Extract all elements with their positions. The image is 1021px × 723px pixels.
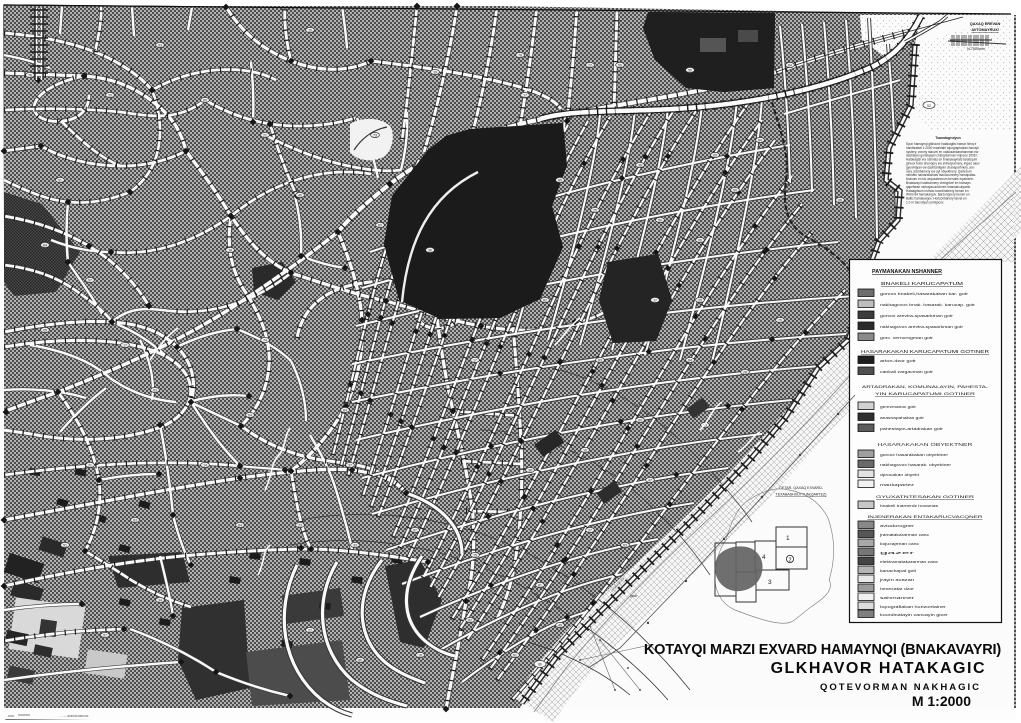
svg-text:34: 34 — [158, 598, 162, 602]
svg-text:3: 3 — [768, 579, 772, 586]
svg-text:21: 21 — [88, 463, 92, 467]
svg-text:avtodorogner: avtodorogner — [880, 524, 915, 528]
svg-text:gerezmanoc gotr: gerezmanoc gotr — [880, 405, 917, 409]
svg-text:getar: getar — [630, 594, 638, 598]
svg-text:29: 29 — [108, 93, 112, 97]
svg-text:pahestayin-artadrakan gotr: pahestayin-artadrakan gotr — [880, 427, 944, 431]
svg-text:sahmanner: sahmanner — [880, 596, 916, 600]
svg-text:89: 89 — [558, 178, 562, 182]
svg-text:56: 56 — [688, 68, 692, 72]
svg-text:37: 37 — [348, 463, 352, 467]
svg-text:57: 57 — [103, 633, 107, 637]
svg-text:arton-dzor gotr: arton-dzor gotr — [880, 359, 917, 363]
svg-text:74: 74 — [263, 338, 267, 342]
svg-text:kojuxajrman canc: kojuxajrman canc — [880, 542, 919, 546]
svg-text:Tsanotagrutyun: Tsanotagrutyun — [935, 136, 960, 140]
svg-text:16: 16 — [583, 448, 587, 452]
svg-text:21: 21 — [263, 133, 267, 137]
svg-text:gorcox hasarakakan obyektner: gorcox hasarakakan obyektner — [880, 453, 949, 457]
svg-text:79: 79 — [778, 318, 782, 322]
svg-text:83: 83 — [133, 518, 137, 522]
svg-text:jrayin avazan: jrayin avazan — [878, 578, 914, 582]
svg-text:84: 84 — [43, 243, 47, 247]
svg-text:69: 69 — [713, 153, 717, 157]
svg-text:52: 52 — [927, 104, 931, 108]
svg-text:84: 84 — [688, 358, 692, 362]
svg-text:topografiakan horizontalner: topografiakan horizontalner — [880, 605, 947, 609]
svg-text:INJENERAKAN ENTAKARUCVACQNER: INJENERAKAN ENTAKARUCVACQNER — [868, 514, 983, 519]
svg-text:QOTEVORMAN NAKHAGIC: QOTEVORMAN NAKHAGIC — [820, 682, 981, 693]
svg-text:84: 84 — [788, 63, 792, 67]
svg-text:HASARAKAKAN OBYEKTNER: HASARAKAKAN OBYEKTNER — [878, 442, 973, 447]
svg-text:27: 27 — [588, 528, 592, 532]
svg-text:15: 15 — [473, 553, 477, 557]
svg-text:jramatakararman canc: jramatakararman canc — [879, 533, 930, 537]
svg-text:60: 60 — [638, 418, 642, 422]
svg-text:GYUXATNTESAKAN GOTINER: GYUXATNTESAKAN GOTINER — [876, 494, 974, 499]
svg-text:gorcox bnakeli,hasarakakan kar: gorcox bnakeli,hasarakakan kar. gotr — [880, 292, 969, 296]
svg-text:1.0 m barzutyan ynmijocov.: 1.0 m barzutyan ynmijocov. — [906, 201, 944, 205]
svg-text:17: 17 — [523, 93, 527, 97]
svg-text:22: 22 — [308, 628, 312, 632]
svg-text:17: 17 — [473, 358, 477, 362]
svg-text:14: 14 — [203, 463, 207, 467]
svg-text:65: 65 — [43, 328, 47, 332]
svg-text:anasnapahakan gotr: anasnapahakan gotr — [880, 416, 925, 420]
svg-text:49: 49 — [558, 623, 562, 627]
svg-text:50: 50 — [658, 218, 662, 222]
svg-text:90: 90 — [733, 188, 737, 192]
svg-text:bnakeli tnamerdz hoxamas: bnakeli tnamerdz hoxamas — [880, 504, 938, 508]
svg-text:4: 4 — [762, 554, 766, 561]
svg-text:QAXAQ EREVAN: QAXAQ EREVAN — [970, 22, 1001, 26]
svg-text:90: 90 — [698, 238, 702, 242]
svg-text:hexexatar dzor: hexexatar dzor — [880, 587, 915, 591]
svg-text:36: 36 — [428, 248, 432, 252]
svg-text:97: 97 — [88, 278, 92, 282]
svg-text:PAYMANAKAN NSHANNER: PAYMANAKAN NSHANNER — [872, 269, 942, 275]
svg-text:97: 97 — [413, 528, 417, 532]
svg-text:47: 47 — [648, 478, 652, 482]
svg-text:40: 40 — [298, 193, 302, 197]
svg-text:82: 82 — [543, 298, 547, 302]
svg-text:- - -- arandznacvox: - - -- arandznacvox — [60, 714, 89, 718]
svg-text:gorc. vernorogman gotr: gorc. vernorogman gotr — [880, 336, 934, 340]
svg-text:gazer: gazer — [880, 551, 917, 555]
svg-text:68: 68 — [838, 198, 842, 202]
svg-text:cankali zargacman gotr: cankali zargacman gotr — [880, 370, 934, 374]
svg-text:18: 18 — [228, 248, 232, 252]
svg-text:78: 78 — [28, 73, 32, 77]
svg-text:80: 80 — [378, 223, 382, 227]
svg-text:18: 18 — [418, 653, 422, 657]
svg-text:38: 38 — [638, 163, 642, 167]
svg-text:84: 84 — [238, 523, 242, 527]
svg-text:2: 2 — [788, 558, 791, 564]
svg-text:38: 38 — [528, 468, 532, 472]
svg-text:56: 56 — [618, 63, 622, 67]
svg-text:80: 80 — [358, 658, 362, 662]
svg-text:17: 17 — [653, 298, 657, 302]
svg-text:64: 64 — [248, 413, 252, 417]
svg-text:28: 28 — [743, 370, 747, 374]
svg-text:16: 16 — [308, 28, 312, 32]
svg-text:GLKHAVOR HATAKAGIC: GLKHAVOR HATAKAGIC — [771, 660, 986, 677]
svg-text:33: 33 — [353, 543, 357, 547]
svg-text:AVTOMAYRUXI: AVTOMAYRUXI — [971, 28, 998, 32]
svg-text:81: 81 — [513, 653, 517, 657]
svg-text:nakhagcvox bnak. hasarak. karu: nakhagcvox bnak. hasarak. karucap. gotr — [880, 303, 976, 307]
svg-text:64: 64 — [343, 408, 347, 412]
svg-text:91: 91 — [63, 543, 67, 547]
svg-text:82: 82 — [468, 618, 472, 622]
svg-text:25: 25 — [698, 298, 702, 302]
svg-text:M 1:2000: M 1:2000 — [912, 693, 971, 709]
svg-text:83: 83 — [623, 543, 627, 547]
svg-text:dprocakan obyekt: dprocakan obyekt — [880, 473, 919, 477]
svg-text:81: 81 — [538, 583, 542, 587]
svg-text:23: 23 — [298, 523, 302, 527]
svg-text:63: 63 — [153, 388, 157, 392]
svg-text:kanachapat goti: kanachapat goti — [880, 569, 916, 573]
svg-text:22: 22 — [588, 63, 592, 67]
svg-text:YIN KARUCAPATUMI GOTINER: YIN KARUCAPATUMI GOTINER — [875, 391, 975, 396]
svg-text:25: 25 — [593, 208, 597, 212]
svg-text:N-7500mm: N-7500mm — [967, 47, 985, 51]
svg-text:51: 51 — [58, 178, 62, 182]
svg-text:73: 73 — [373, 133, 377, 137]
svg-text:KOTAYQI MARZI EXVARD HAMAYNQI: KOTAYQI MARZI EXVARD HAMAYNQI (BNAKAVAYR… — [644, 642, 1001, 658]
svg-text:ARTADRAKAN, KOMUNALAYIN, PAHES: ARTADRAKAN, KOMUNALAYIN, PAHESTA- — [862, 384, 989, 389]
svg-text:78: 78 — [518, 53, 522, 57]
svg-text:HASARAKAKAN KARUCAPATUMI GOTIN: HASARAKAKAN KARUCAPATUMI GOTINER — [861, 349, 989, 354]
svg-text:84: 84 — [758, 138, 762, 142]
svg-text:gorcox arevtra-spasarkman gotr: gorcox arevtra-spasarkman gotr — [880, 314, 954, 318]
svg-text:elektramatakararman canc: elektramatakararman canc — [880, 560, 938, 564]
svg-text:koordinatayin cancayin gicer: koordinatayin cancayin gicer — [880, 613, 949, 617]
svg-text:60: 60 — [203, 98, 207, 102]
svg-text:83: 83 — [598, 358, 602, 362]
svg-text:BNAKELI KARUCAPATUM: BNAKELI KARUCAPATUM — [881, 281, 964, 286]
svg-text:93: 93 — [158, 43, 162, 47]
svg-text:nakhagcvox hasarak. obyektner: nakhagcvox hasarak. obyektner — [880, 463, 952, 467]
svg-text:19: 19 — [433, 70, 437, 74]
svg-text:mankapartez: mankapartez — [880, 483, 914, 487]
svg-text:nakhagcvox arevtra-spasarkman: nakhagcvox arevtra-spasarkman gotr — [880, 325, 964, 329]
svg-text:17: 17 — [123, 343, 127, 347]
svg-text:1: 1 — [786, 535, 790, 542]
svg-text:86: 86 — [538, 663, 542, 667]
